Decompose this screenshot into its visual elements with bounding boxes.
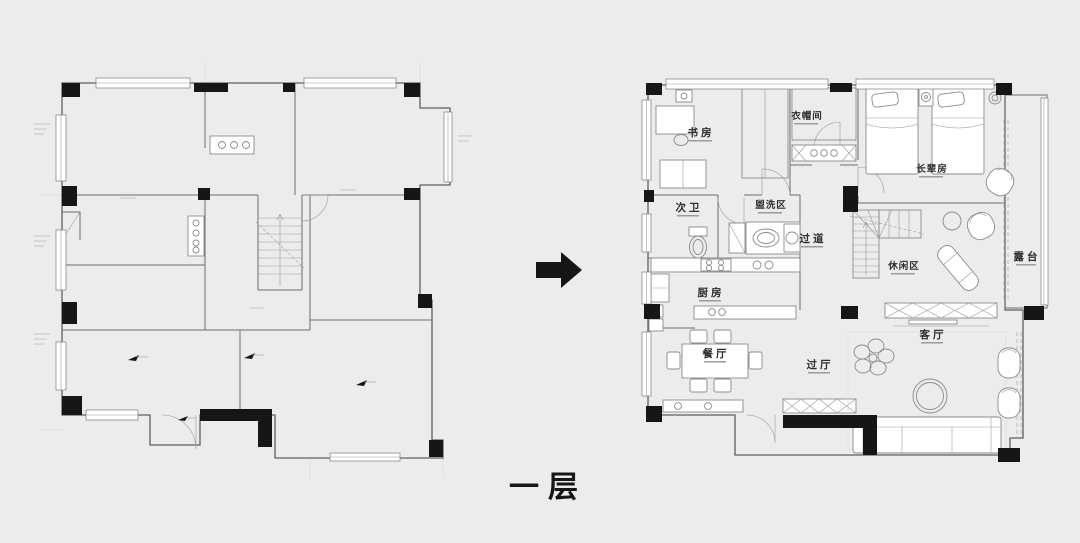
level-marker	[178, 416, 196, 421]
kitchen-counter	[651, 258, 800, 272]
left-floor-plan	[34, 62, 472, 480]
wash-area-fixtures	[729, 222, 800, 254]
room-label-living: 客厅	[919, 328, 947, 341]
single-bed	[932, 88, 984, 174]
fixture-cabinets	[188, 136, 254, 256]
single-bed	[866, 88, 918, 174]
room-label-leisure: 休闲区	[887, 260, 920, 272]
staircase	[256, 214, 304, 286]
armchair	[982, 164, 1018, 200]
shoe-cabinet	[783, 399, 856, 413]
elder-bedroom-furniture	[866, 88, 1018, 200]
armchair	[998, 348, 1020, 378]
level-marker	[356, 380, 376, 386]
right-floor-plan: 书房 衣帽间 长辈房 次卫 盥洗区 过道 休闲区 露台 厨房 餐厅 过厅 客厅	[642, 79, 1048, 462]
room-label-dining: 餐厅	[702, 347, 730, 360]
tv	[909, 320, 957, 324]
level-marker	[244, 353, 264, 359]
leisure-furniture	[934, 209, 998, 294]
windows	[56, 78, 452, 461]
kitchen-fixtures	[649, 258, 800, 331]
right-arrow-icon	[536, 252, 582, 288]
interior-walls	[62, 83, 432, 415]
dining-furniture	[663, 330, 762, 412]
side-table	[943, 212, 961, 230]
room-label-study: 书房	[688, 126, 715, 139]
armchair	[964, 209, 999, 244]
lounge-chair	[934, 242, 981, 293]
room-label-kitchen: 厨房	[698, 286, 725, 299]
transform-arrow	[536, 252, 582, 288]
dimension-annotations	[34, 124, 472, 421]
room-label-second-bath: 次卫	[676, 201, 703, 214]
tv-console	[885, 303, 997, 318]
toilet-tank	[689, 227, 707, 236]
floor-plan-comparison-image: 书房 衣帽间 长辈房 次卫 盥洗区 过道 休闲区 露台 厨房 餐厅 过厅 客厅	[0, 0, 1080, 543]
floor-outline	[62, 83, 450, 458]
room-label-hallway: 过厅	[807, 358, 834, 371]
terrace-area	[1004, 95, 1048, 308]
armchair	[998, 388, 1020, 418]
bathroom-fixtures	[689, 227, 707, 258]
floor-level-caption: 一层	[509, 470, 587, 505]
room-label-cloakroom: 衣帽间	[791, 110, 823, 122]
level-marker	[128, 355, 148, 361]
island-counter	[694, 306, 796, 319]
room-label-terrace: 露台	[1014, 250, 1041, 263]
coffee-table	[913, 379, 947, 413]
room-label-wash-area: 盥洗区	[755, 199, 787, 211]
plant	[854, 339, 894, 375]
room-label-elder-bedroom: 长辈房	[916, 163, 948, 175]
room-label-corridor: 过道	[800, 232, 827, 245]
study-furniture	[656, 88, 788, 188]
doors	[718, 122, 884, 443]
